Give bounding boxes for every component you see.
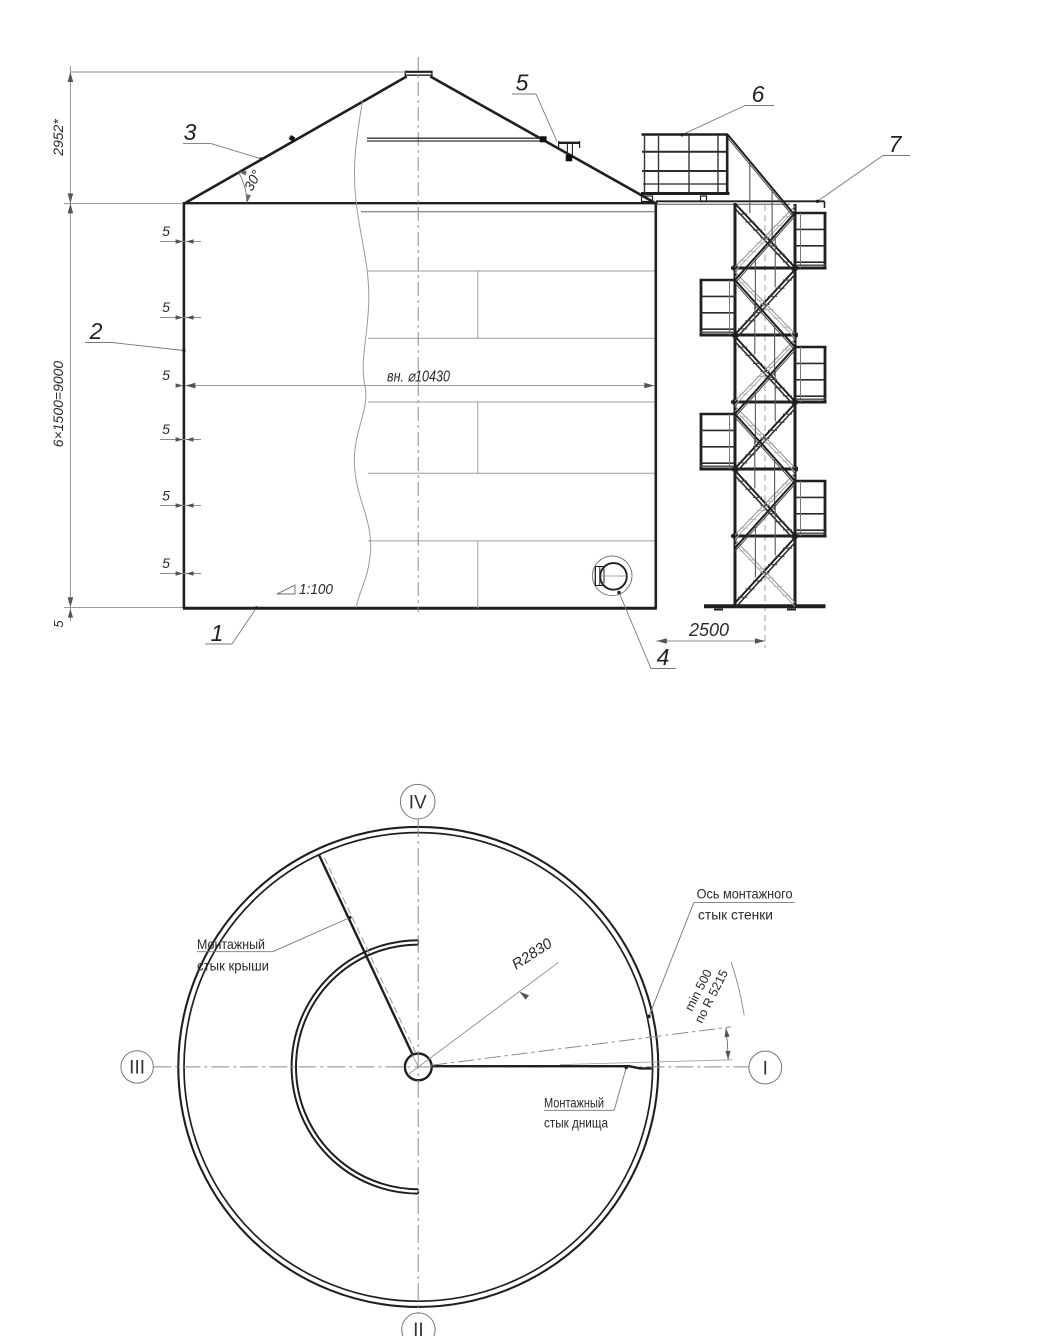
- svg-text:2952*: 2952*: [50, 119, 66, 157]
- svg-text:Монтажный: Монтажный: [197, 936, 265, 952]
- svg-text:1:100: 1:100: [299, 581, 334, 598]
- svg-text:стык стенки: стык стенки: [698, 907, 773, 923]
- svg-text:5: 5: [162, 488, 170, 504]
- svg-text:5: 5: [162, 299, 170, 315]
- svg-text:5: 5: [162, 367, 170, 383]
- svg-text:2500: 2500: [688, 620, 729, 640]
- svg-text:Ось монтажного: Ось монтажного: [697, 885, 793, 901]
- svg-text:3: 3: [184, 119, 197, 145]
- svg-text:Монтажный: Монтажный: [544, 1095, 604, 1111]
- svg-text:6: 6: [752, 81, 765, 107]
- svg-text:стык крыши: стык крыши: [197, 958, 269, 974]
- svg-text:5: 5: [516, 70, 529, 96]
- svg-text:5: 5: [162, 421, 170, 437]
- svg-text:5: 5: [162, 223, 170, 239]
- svg-text:2: 2: [89, 318, 103, 344]
- svg-text:IV: IV: [409, 793, 427, 814]
- svg-text:1: 1: [211, 620, 224, 646]
- svg-text:стык днища: стык днища: [544, 1115, 608, 1131]
- svg-text:6×1500=9000: 6×1500=9000: [50, 361, 66, 448]
- svg-text:4: 4: [657, 644, 670, 670]
- svg-text:I: I: [763, 1058, 768, 1079]
- svg-text:5: 5: [51, 620, 66, 628]
- svg-text:III: III: [129, 1058, 145, 1079]
- svg-text:7: 7: [889, 131, 903, 157]
- svg-text:5: 5: [162, 555, 170, 571]
- svg-text:II: II: [413, 1320, 424, 1336]
- svg-text:вн. ⌀10430: вн. ⌀10430: [387, 369, 450, 386]
